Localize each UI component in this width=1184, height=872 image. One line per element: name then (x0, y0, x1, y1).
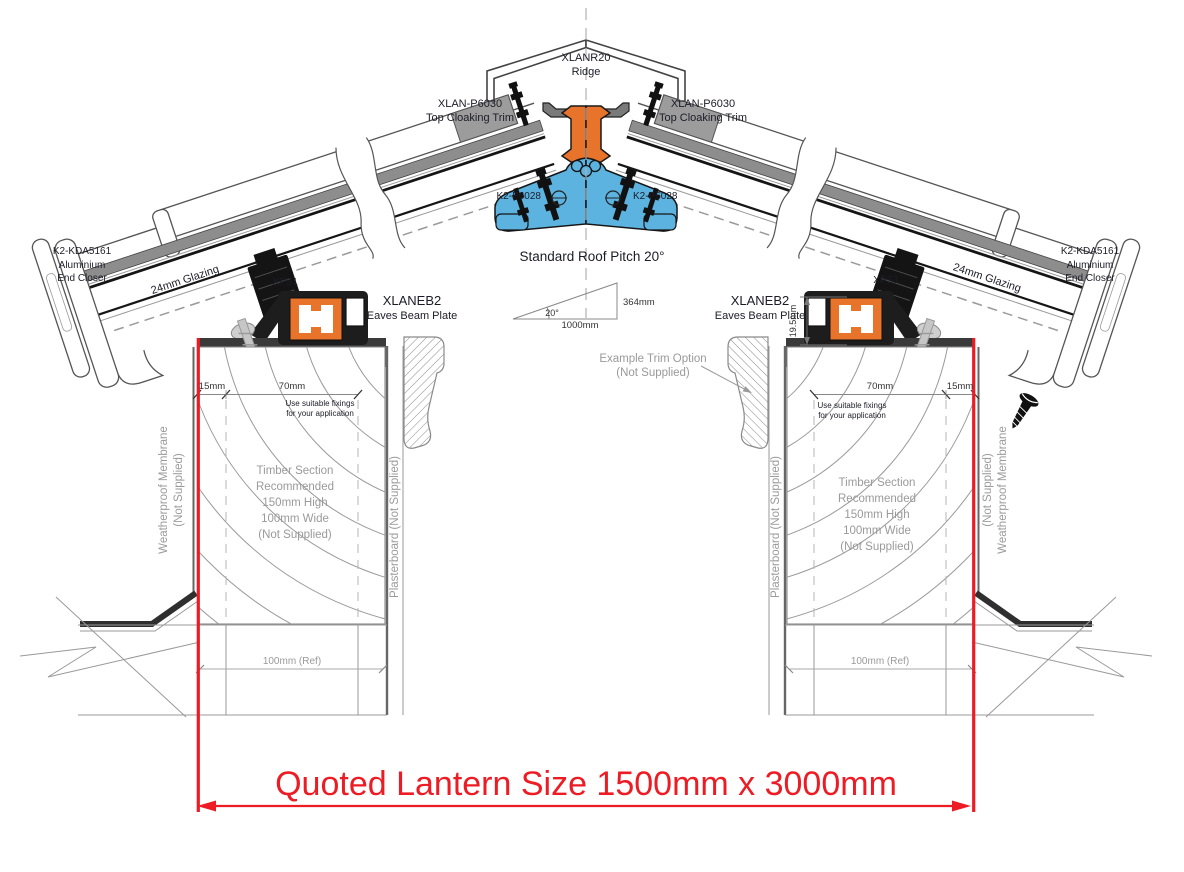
pitch-rise-label: 364mm (623, 297, 655, 308)
end-closer-material-label-left: Aluminium (59, 260, 106, 271)
ridge-fixing-label-left: K2-P6028 (497, 191, 542, 202)
wall-ref-label-left: 100mm (Ref) (263, 656, 321, 667)
fixings-note-line1-left: Use suitable fixings (286, 399, 355, 408)
end-closer-name-label-left: End Closer (57, 273, 107, 284)
trim-option-line2: (Not Supplied) (616, 367, 690, 379)
membrane-label-line1-right: Weatherproof Membrane (997, 426, 1009, 554)
dim-70mm-right: 70mm (867, 381, 893, 392)
xps-label-right: XPS1 (873, 275, 899, 286)
timber-note-line2-left: Recommended (256, 481, 334, 493)
dim-15mm-right: 15mm (947, 381, 973, 392)
xps-label-left: XPS1 (272, 277, 298, 288)
dim-70mm-left: 70mm (279, 381, 305, 392)
end-closer-name-label-right: End Closer (1065, 273, 1115, 284)
timber-note-line3-left: 150mm High (262, 497, 327, 509)
fixings-note-line2-left: for your application (286, 409, 354, 418)
timber-note-line5-left: (Not Supplied) (258, 529, 332, 541)
timber-note-line1-left: Timber Section (257, 465, 334, 477)
membrane-label-line1-left: Weatherproof Membrane (158, 426, 170, 554)
roof-lantern-section-diagram: XLANR20 Ridge XLAN-P6030 Top Cloaking Tr… (0, 0, 1184, 872)
timber-note-line5-right: (Not Supplied) (840, 541, 914, 553)
ridge-part-label: XLANR20 (562, 52, 611, 64)
end-closer-part-label-right: K2-KDA5161 (1061, 246, 1120, 257)
timber-note-line1-right: Timber Section (839, 477, 916, 489)
eaves-beam-part-label-right: XLANEB2 (731, 293, 790, 308)
end-closer-part-label-left: K2-KDA5161 (53, 246, 112, 257)
pitch-triangle (513, 283, 617, 319)
dim-beam-height: 19.5mm (788, 305, 798, 338)
membrane-label-line2-left: (Not Supplied) (173, 453, 185, 527)
fixings-note-line2-right: for your application (818, 411, 886, 420)
ceiling-lines (78, 625, 387, 715)
example-trim (404, 337, 444, 448)
timber-note-line4-right: 100mm Wide (843, 525, 911, 537)
ridge-fixing-label-right: K2-P6028 (633, 191, 678, 202)
top-trim-name-label-right: Top Cloaking Trim (659, 112, 747, 124)
wall-ref-label-right: 100mm (Ref) (851, 656, 909, 667)
fixings-note-line1-right: Use suitable fixings (818, 401, 887, 410)
quoted-size-label: Quoted Lantern Size 1500mm x 3000mm (275, 765, 897, 803)
eaves-beam-name-label-left: Eaves Beam Plate (367, 310, 458, 322)
dim-15mm-left: 15mm (199, 381, 225, 392)
membrane-label-line2-right: (Not Supplied) (982, 453, 994, 527)
end-closer-material-label-right: Aluminium (1067, 260, 1114, 271)
top-trim-part-label-right: XLAN-P6030 (671, 98, 735, 110)
plasterboard-label-right: Plasterboard (Not Supplied) (770, 456, 782, 598)
trim-option-line1: Example Trim Option (599, 353, 706, 365)
timber-note-line3-right: 150mm High (844, 509, 909, 521)
eaves-beam-pocket (346, 298, 364, 326)
pitch-angle-label: 20° (545, 308, 559, 318)
break-mark (20, 597, 200, 717)
pitch-run-label: 1000mm (562, 320, 599, 331)
timber-note-line4-left: 100mm Wide (261, 513, 329, 525)
diagram-canvas: XLANR20 Ridge XLAN-P6030 Top Cloaking Tr… (0, 0, 1184, 872)
top-trim-name-label-left: Top Cloaking Trim (426, 112, 514, 124)
pitch-note-label: Standard Roof Pitch 20° (520, 249, 665, 264)
timber-note-line2-right: Recommended (838, 493, 916, 505)
eaves-beam-part-label-left: XLANEB2 (383, 293, 442, 308)
ridge-name-label: Ridge (572, 66, 601, 78)
top-trim-part-label-left: XLAN-P6030 (438, 98, 502, 110)
plasterboard-label-left: Plasterboard (Not Supplied) (389, 456, 401, 598)
